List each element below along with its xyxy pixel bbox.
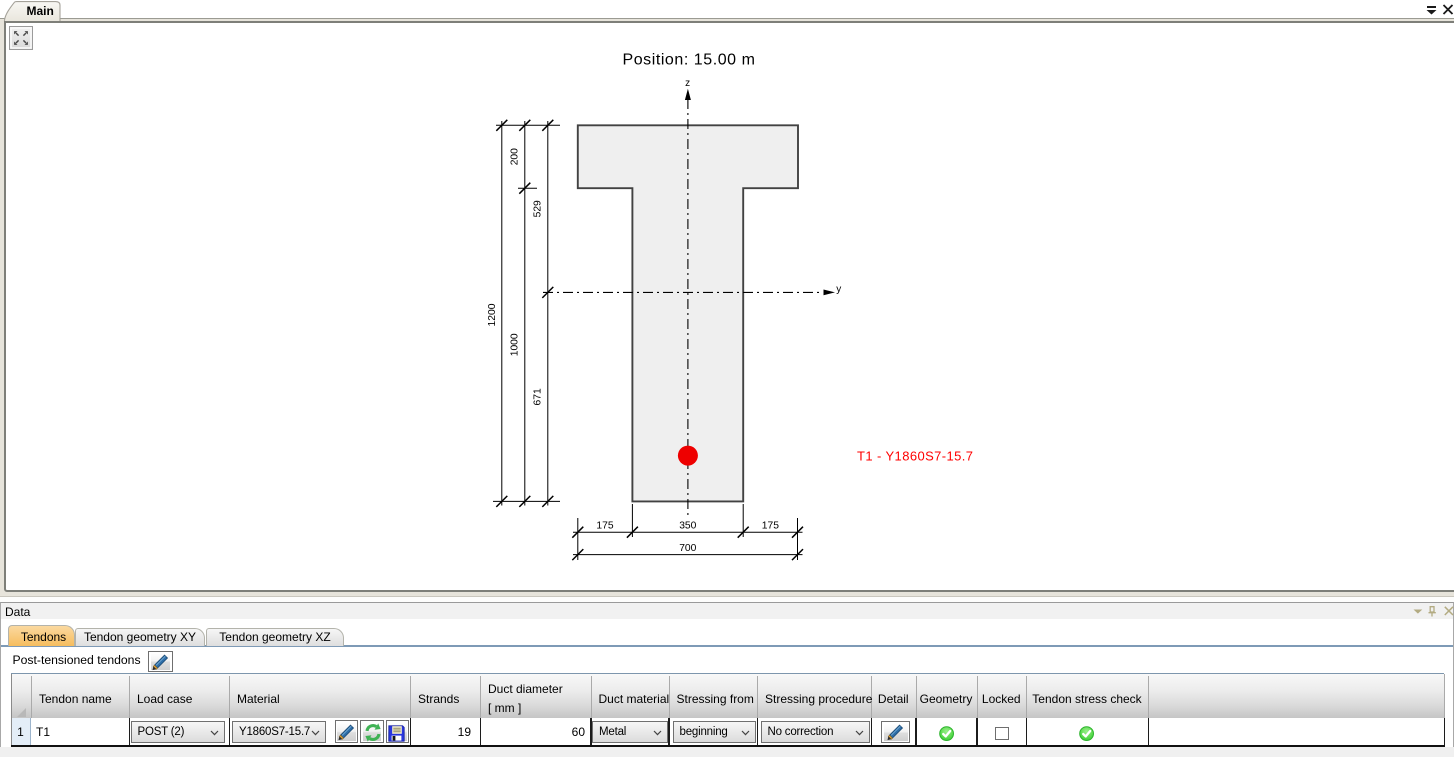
svg-text:200: 200	[509, 148, 520, 165]
svg-text:1200: 1200	[487, 303, 498, 326]
svg-text:175: 175	[762, 521, 779, 532]
svg-text:350: 350	[679, 521, 696, 532]
svg-text:Position: 15.00 m: Position: 15.00 m	[623, 52, 756, 69]
svg-text:671: 671	[532, 388, 543, 405]
svg-text:700: 700	[679, 543, 696, 554]
svg-text:529: 529	[532, 200, 543, 217]
svg-text:z: z	[685, 78, 690, 89]
svg-text:y: y	[836, 284, 841, 295]
svg-text:175: 175	[596, 521, 613, 532]
svg-text:1000: 1000	[509, 333, 520, 356]
svg-text:T1 - Y1860S7-15.7: T1 - Y1860S7-15.7	[857, 449, 973, 464]
